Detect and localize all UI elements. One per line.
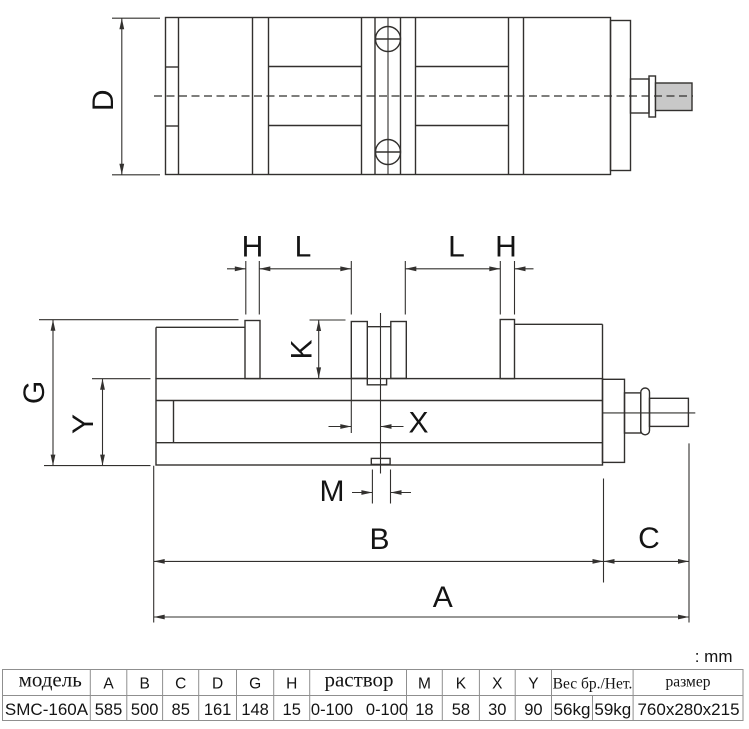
svg-text:G: G (249, 676, 261, 693)
svg-text:500: 500 (131, 701, 159, 719)
svg-text:M: M (320, 475, 345, 508)
svg-text:85: 85 (172, 701, 190, 719)
svg-text:18: 18 (415, 701, 433, 719)
svg-text:L: L (295, 230, 312, 263)
svg-text:B: B (369, 523, 389, 556)
svg-text:модель: модель (19, 668, 82, 692)
svg-text:размер: размер (666, 674, 711, 691)
svg-text:L: L (448, 230, 465, 263)
svg-text:G: G (18, 381, 51, 404)
svg-text:X: X (408, 407, 428, 440)
svg-text:Вес бр./Нет.: Вес бр./Нет. (553, 676, 633, 693)
svg-text:A: A (433, 581, 453, 614)
svg-text:90: 90 (524, 701, 542, 719)
svg-text:SMC-160A: SMC-160A (5, 700, 89, 719)
svg-text:161: 161 (204, 701, 232, 719)
svg-text:0-100: 0-100 (311, 701, 353, 719)
svg-text:D: D (87, 89, 120, 111)
svg-text:C: C (638, 522, 660, 555)
svg-text:C: C (175, 676, 186, 693)
svg-text:760x280x215: 760x280x215 (637, 700, 739, 719)
svg-text:K: K (456, 676, 467, 693)
svg-text:Y: Y (67, 414, 100, 434)
svg-text:0-100: 0-100 (366, 701, 408, 719)
svg-text:A: A (103, 676, 114, 693)
svg-text:58: 58 (452, 701, 470, 719)
svg-text:: mm: : mm (695, 647, 733, 666)
svg-text:30: 30 (488, 701, 506, 719)
svg-text:59kg: 59kg (594, 700, 631, 719)
svg-text:B: B (140, 676, 150, 693)
svg-text:H: H (495, 230, 517, 263)
svg-text:M: M (418, 676, 431, 693)
svg-text:H: H (286, 676, 297, 693)
svg-text:H: H (242, 230, 264, 263)
svg-text:раствор: раствор (324, 668, 393, 692)
svg-text:Y: Y (528, 676, 538, 693)
svg-text:X: X (492, 676, 503, 693)
svg-text:15: 15 (283, 701, 301, 719)
svg-text:D: D (212, 676, 223, 693)
svg-text:148: 148 (241, 701, 269, 719)
svg-text:585: 585 (95, 701, 123, 719)
svg-text:56kg: 56kg (554, 700, 591, 719)
svg-text:K: K (285, 339, 318, 359)
